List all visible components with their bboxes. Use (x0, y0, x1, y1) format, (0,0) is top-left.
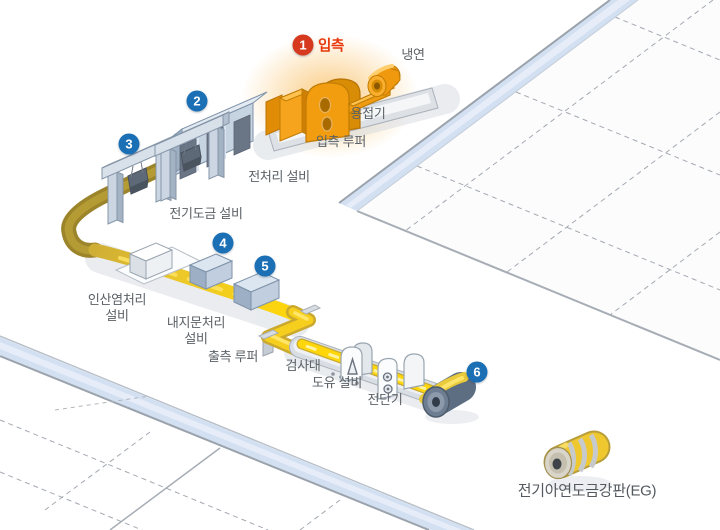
label-pretreatment: 전처리 설비 (248, 169, 310, 185)
label-oiling: 도유 설비 (312, 375, 362, 391)
label-phosphate-line1: 인산염처리 (88, 292, 146, 308)
label-anti-fingerprint: 내지문처리 설비 (167, 315, 225, 348)
label-cold-rolled: 냉연 (401, 47, 424, 63)
label-product: 전기아연도금강판(EG) (518, 483, 656, 502)
step-badge-5[interactable]: 5 (255, 256, 276, 277)
label-exit-looper: 출측 루퍼 (208, 349, 258, 365)
process-diagram: 1 2 3 4 5 6 입측 냉연 용접기 입측 루퍼 전처리 설비 전기도금 … (0, 0, 720, 530)
diagram-artwork (0, 0, 720, 530)
label-phosphate: 인산염처리 설비 (88, 292, 146, 325)
step-badge-3[interactable]: 3 (119, 134, 140, 155)
label-electroplating: 전기도금 설비 (169, 206, 242, 222)
label-inspection: 검사대 (286, 358, 321, 374)
label-entry-looper: 입측 루퍼 (316, 134, 366, 150)
step-badge-6[interactable]: 6 (467, 362, 488, 383)
label-phosphate-line2: 설비 (88, 308, 146, 324)
step-badge-2[interactable]: 2 (187, 91, 208, 112)
step-badge-4[interactable]: 4 (213, 233, 234, 254)
label-shear: 전단기 (368, 392, 403, 408)
label-anti-fingerprint-line1: 내지문처리 (167, 315, 225, 331)
label-entry-side: 입측 (318, 35, 344, 56)
label-anti-fingerprint-line2: 설비 (167, 331, 225, 347)
step-badge-1[interactable]: 1 (293, 35, 314, 56)
label-welder: 용접기 (351, 106, 386, 122)
